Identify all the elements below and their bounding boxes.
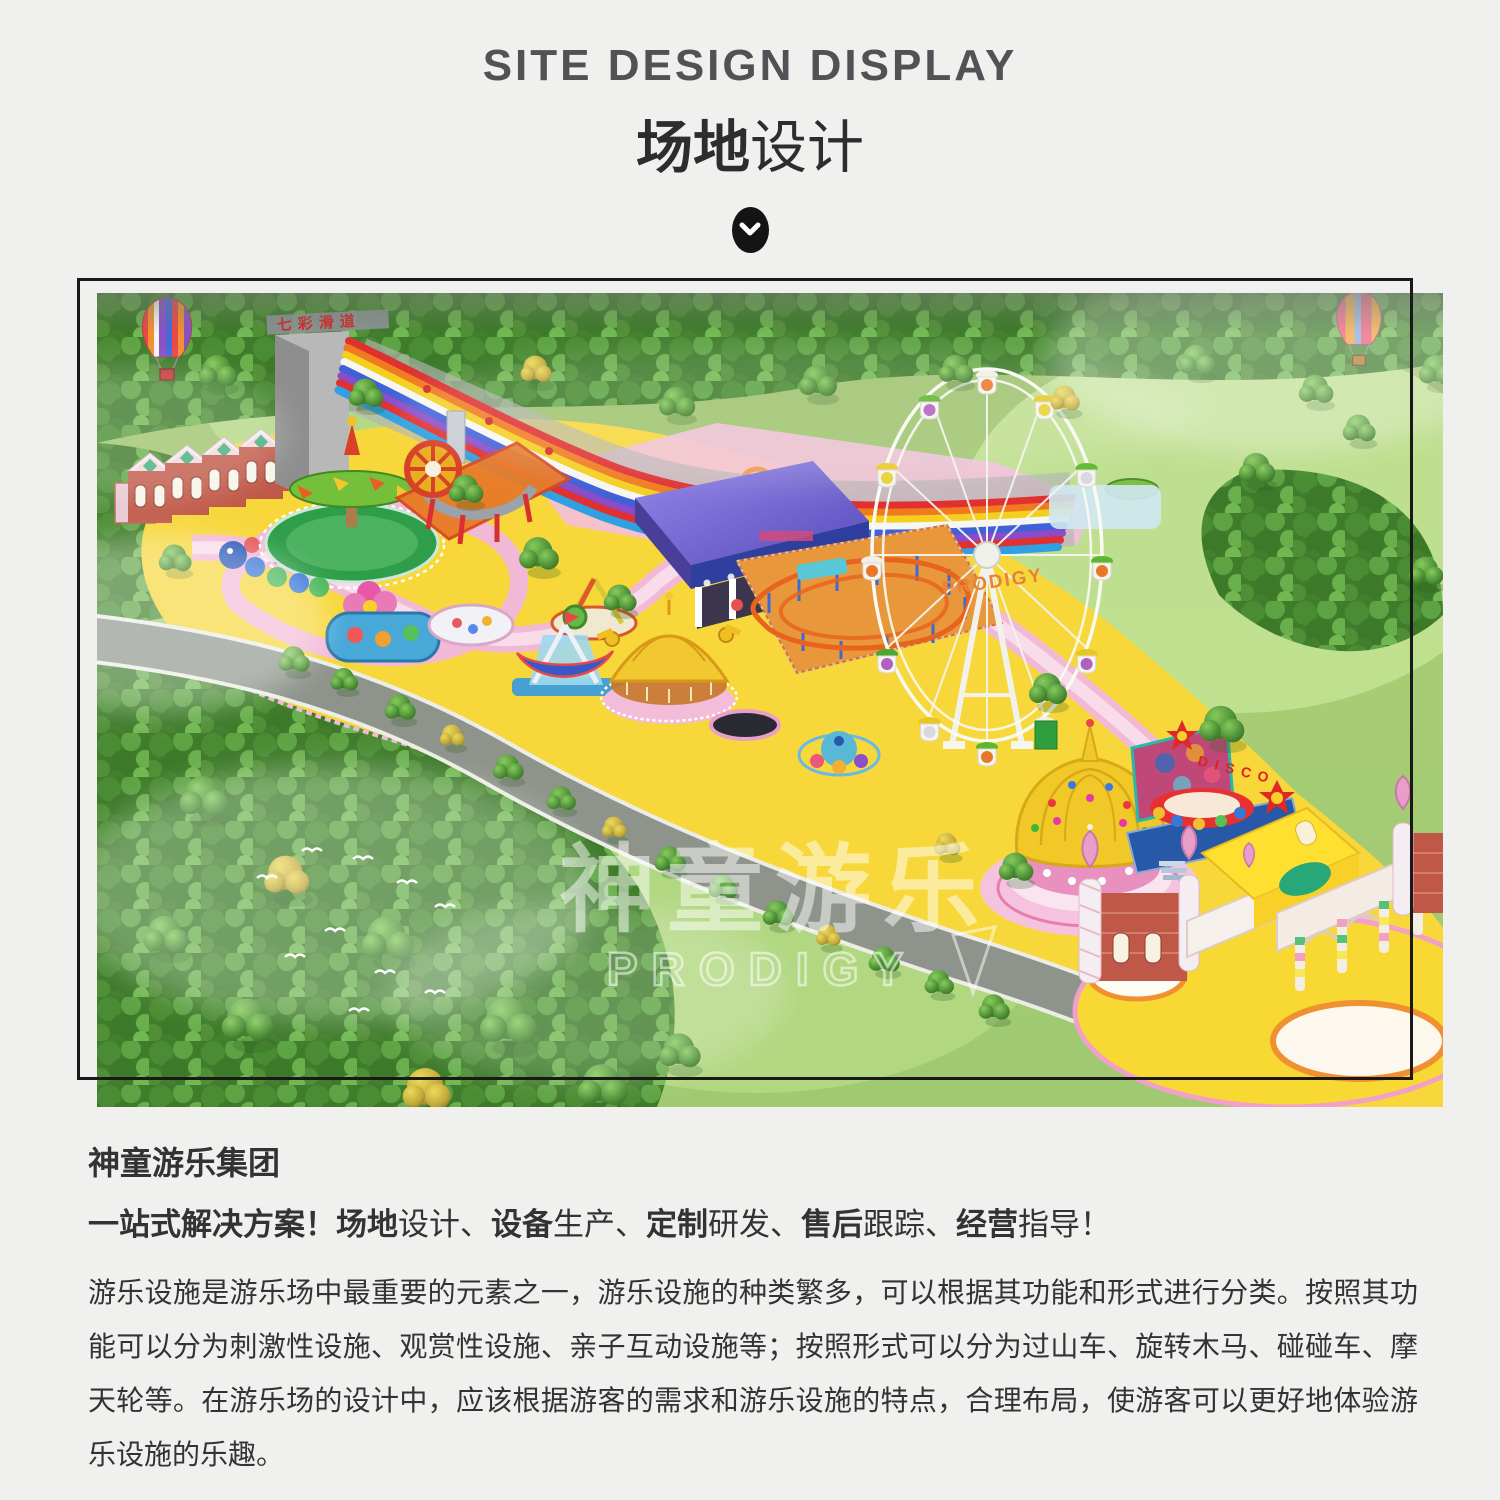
site-design-render: 七彩滑道 bbox=[97, 293, 1443, 1107]
section-title-en: SITE DESIGN DISPLAY bbox=[0, 44, 1500, 88]
tagline-segment: 生产、 bbox=[553, 1207, 646, 1242]
tagline: 一站式解决方案！场地设计、设备生产、定制研发、售后跟踪、经营指导！ bbox=[88, 1206, 1418, 1243]
site-render-figure: 七彩滑道 bbox=[0, 278, 1500, 1107]
tagline-segment: 跟踪、 bbox=[863, 1207, 956, 1242]
tagline-segment: 指导！ bbox=[1018, 1207, 1111, 1242]
tagline-segment: 设备 bbox=[491, 1207, 553, 1242]
tagline-segment: 售后 bbox=[801, 1207, 863, 1242]
description-paragraph: 游乐设施是游乐场中最重要的元素之一，游乐设施的种类繁多，可以根据其功能和形式进行… bbox=[88, 1266, 1418, 1482]
scroll-indicator[interactable] bbox=[0, 207, 1500, 253]
tagline-segment: 一站式解决方案！ bbox=[88, 1207, 336, 1242]
page: SITE DESIGN DISPLAY 场地设计 bbox=[0, 0, 1500, 1500]
chevron-down-icon[interactable] bbox=[732, 207, 769, 253]
tagline-segment: 定制 bbox=[646, 1207, 708, 1242]
section-title-zh-bold: 场地 bbox=[636, 116, 750, 180]
section-title-zh-rest: 设计 bbox=[750, 116, 864, 180]
tagline-segment: 经营 bbox=[956, 1207, 1018, 1242]
company-heading: 神童游乐集团 bbox=[88, 1144, 1418, 1182]
trampoline bbox=[711, 711, 779, 739]
tagline-segment: 研发、 bbox=[708, 1207, 801, 1242]
tagline-segment: 设计、 bbox=[398, 1207, 491, 1242]
section-title-zh: 场地设计 bbox=[0, 120, 1500, 177]
watermark-en: PRODIGY bbox=[607, 943, 917, 995]
tagline-segment: 场地 bbox=[336, 1207, 398, 1242]
watermark-cn: 神童游乐 bbox=[559, 837, 991, 944]
